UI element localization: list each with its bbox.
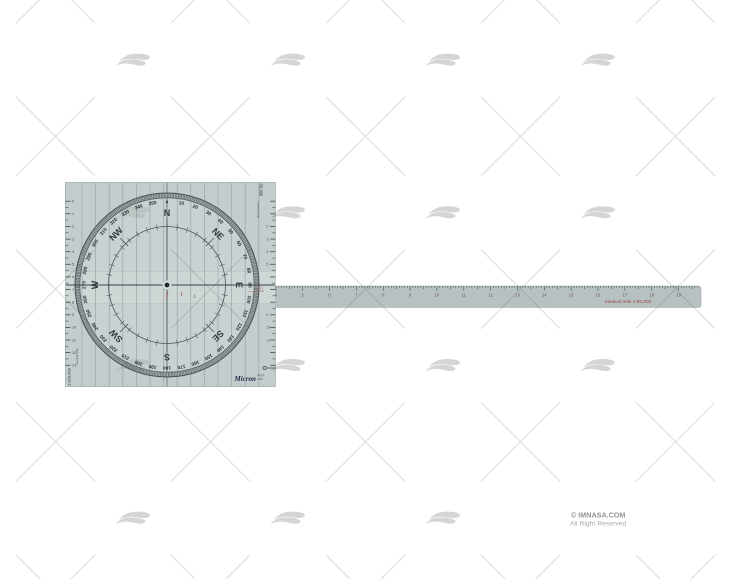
- svg-text:5: 5: [266, 263, 268, 267]
- svg-text:nautical mile: nautical mile: [257, 202, 261, 219]
- svg-text:nautical mile 1:50,000: nautical mile 1:50,000: [605, 299, 652, 305]
- svg-text:50,000: 50,000: [259, 184, 264, 197]
- svg-text:12: 12: [488, 293, 493, 298]
- svg-text:14: 14: [542, 293, 547, 298]
- svg-text:1: 1: [72, 212, 74, 216]
- svg-text:11: 11: [266, 338, 270, 342]
- svg-text:All Right Reserved: All Right Reserved: [570, 521, 627, 528]
- svg-text:4: 4: [72, 250, 74, 254]
- svg-text:3: 3: [266, 237, 268, 241]
- svg-text:9: 9: [72, 313, 74, 317]
- svg-text:15: 15: [569, 293, 574, 298]
- svg-text:3: 3: [72, 237, 74, 241]
- svg-text:18: 18: [649, 293, 654, 298]
- svg-text:5: 5: [72, 263, 74, 267]
- svg-text:10: 10: [266, 326, 270, 330]
- svg-text:Micron: Micron: [234, 375, 257, 383]
- svg-text:1:200,000: 1:200,000: [67, 367, 72, 386]
- svg-text:180: 180: [163, 365, 171, 371]
- svg-text:8: 8: [72, 301, 74, 305]
- svg-text:6: 6: [72, 275, 74, 279]
- svg-text:1:50: 1:50: [258, 377, 264, 381]
- svg-text:0: 0: [72, 200, 74, 204]
- svg-text:2: 2: [266, 225, 268, 229]
- svg-text:16: 16: [596, 293, 601, 298]
- svg-text:4: 4: [266, 250, 268, 254]
- svg-text:10: 10: [435, 293, 440, 298]
- svg-text:nautical mile: nautical mile: [75, 348, 79, 365]
- svg-text:9: 9: [266, 313, 268, 317]
- svg-text:N: N: [164, 208, 171, 218]
- svg-text:17: 17: [622, 293, 627, 298]
- svg-text:S: S: [164, 352, 170, 362]
- svg-text:0: 0: [166, 199, 169, 205]
- svg-text:PAT.P: PAT.P: [258, 374, 265, 378]
- svg-text:11: 11: [462, 293, 467, 298]
- svg-text:7: 7: [72, 288, 74, 292]
- svg-text:10: 10: [72, 326, 76, 330]
- svg-text:© IMNASA.COM: © IMNASA.COM: [571, 511, 625, 520]
- svg-text:2: 2: [72, 225, 74, 229]
- svg-text:11: 11: [72, 338, 76, 342]
